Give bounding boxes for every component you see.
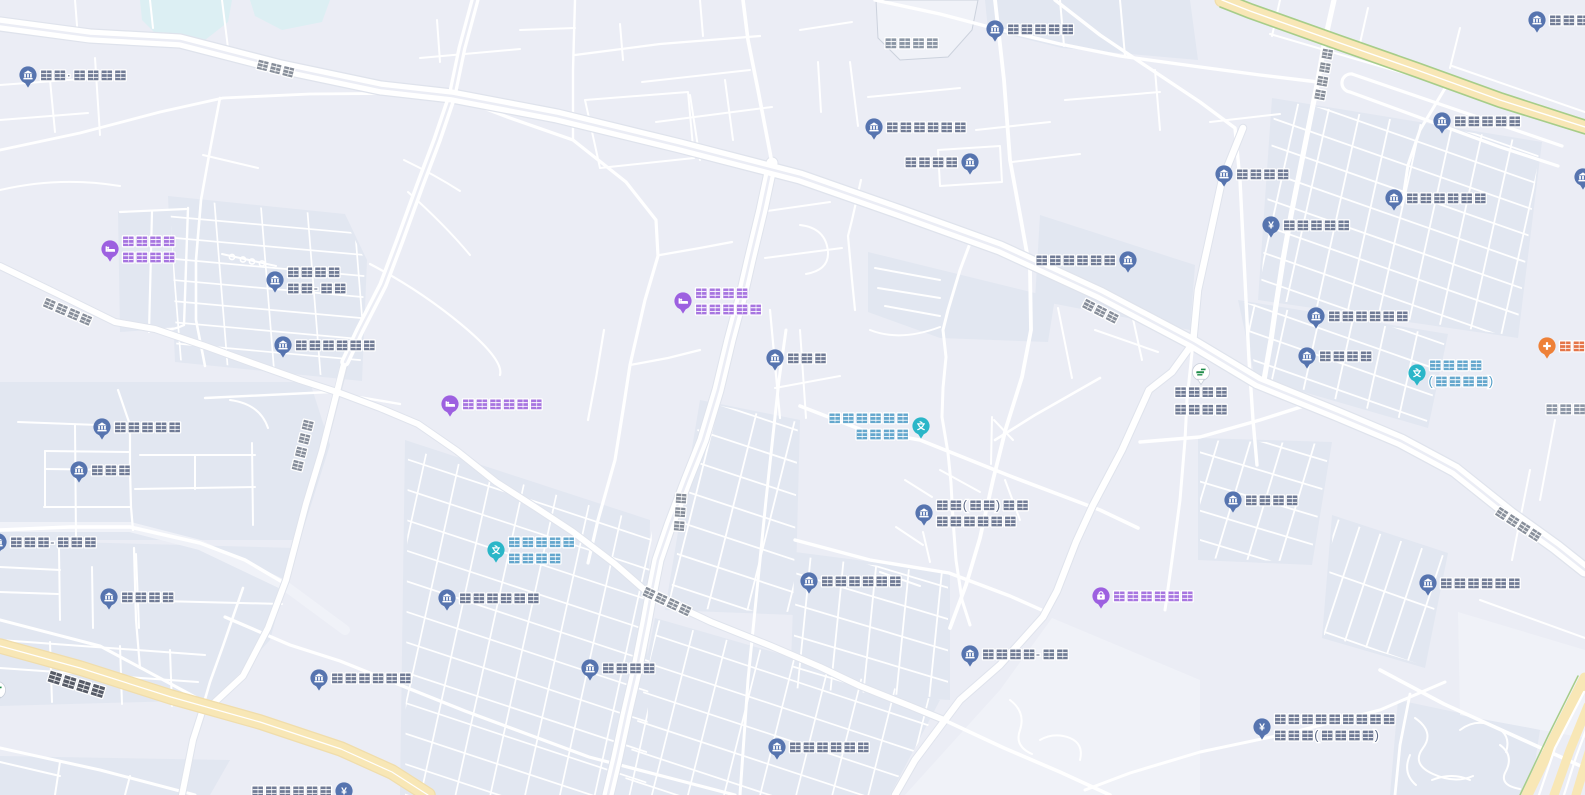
- svg-text:·: ·: [67, 68, 71, 82]
- svg-text:-: -: [314, 282, 318, 296]
- svg-text:¥: ¥: [341, 786, 347, 795]
- svg-text:): ): [1489, 375, 1493, 389]
- svg-text:¥: ¥: [1259, 722, 1265, 734]
- svg-text:): ): [996, 498, 1000, 512]
- svg-text:¥: ¥: [1268, 220, 1274, 232]
- svg-text:-: -: [1036, 647, 1040, 661]
- svg-text:-: -: [50, 535, 54, 549]
- svg-text:): ): [1375, 729, 1379, 743]
